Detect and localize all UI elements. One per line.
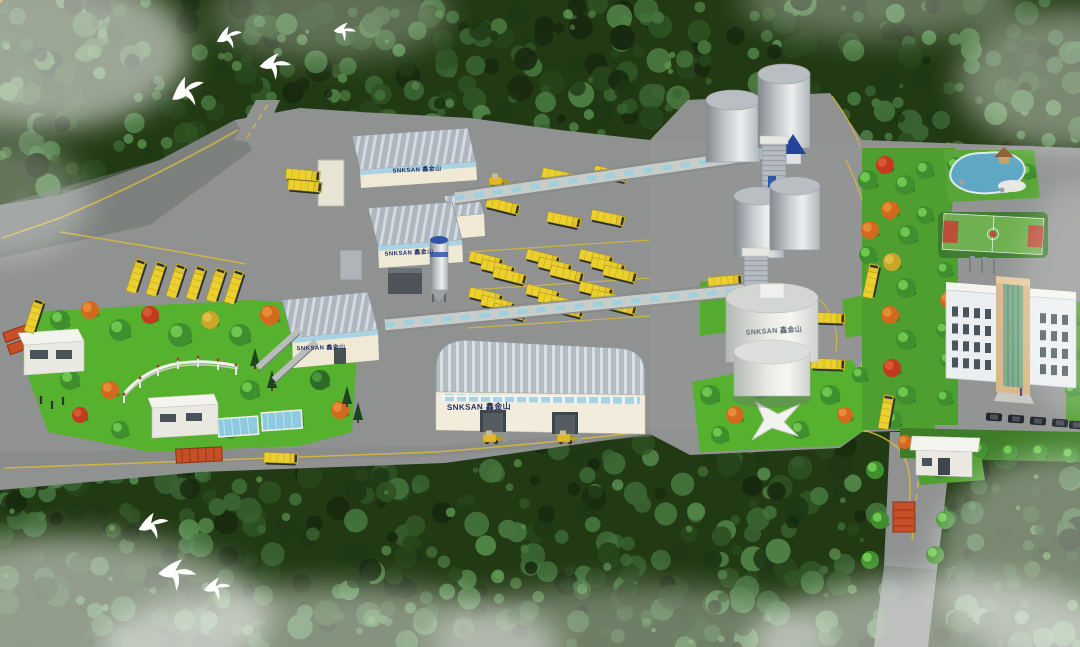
storage-silo: [758, 64, 810, 148]
weighbridge-southeast: [893, 502, 915, 532]
parked-car: [1052, 418, 1069, 427]
person: [62, 397, 65, 405]
weighbridge-south: [176, 447, 223, 463]
parked-car: [1069, 420, 1080, 429]
office-window: [974, 325, 980, 335]
office-window: [963, 358, 969, 368]
office-window: [952, 358, 958, 368]
pump-house: [148, 394, 218, 438]
office-window: [974, 359, 980, 369]
aggregate-warehouse: [436, 340, 645, 434]
office-window: [952, 324, 958, 334]
dump-truck: [264, 452, 298, 465]
office-window: [974, 342, 980, 352]
person: [40, 396, 43, 404]
storage-silo: [706, 90, 760, 162]
parked-car: [986, 412, 1003, 421]
office-window: [952, 307, 958, 317]
parked-car: [1008, 414, 1025, 423]
office-window: [985, 326, 991, 336]
snksan-main-silo: [726, 283, 818, 408]
dust-collector-silo: [430, 236, 448, 302]
office-window: [963, 324, 969, 334]
office-window: [985, 343, 991, 353]
person: [1020, 388, 1023, 396]
office-window: [985, 309, 991, 319]
office-window: [963, 341, 969, 351]
gatehouse-west: [18, 329, 84, 375]
gatehouse-east: [910, 436, 980, 477]
office-window: [985, 360, 991, 370]
office-window: [974, 308, 980, 318]
storage-silo: [770, 177, 820, 250]
plant-aerial-render: SNKSAN 鑫金山SNKSAN 鑫金山SNKSAN 鑫金山SNKSAN 鑫金山…: [0, 0, 1080, 647]
parked-car: [1030, 416, 1047, 425]
office-window: [952, 341, 958, 351]
office-window: [963, 307, 969, 317]
person: [51, 401, 54, 409]
scene-canvas: [0, 0, 1080, 647]
